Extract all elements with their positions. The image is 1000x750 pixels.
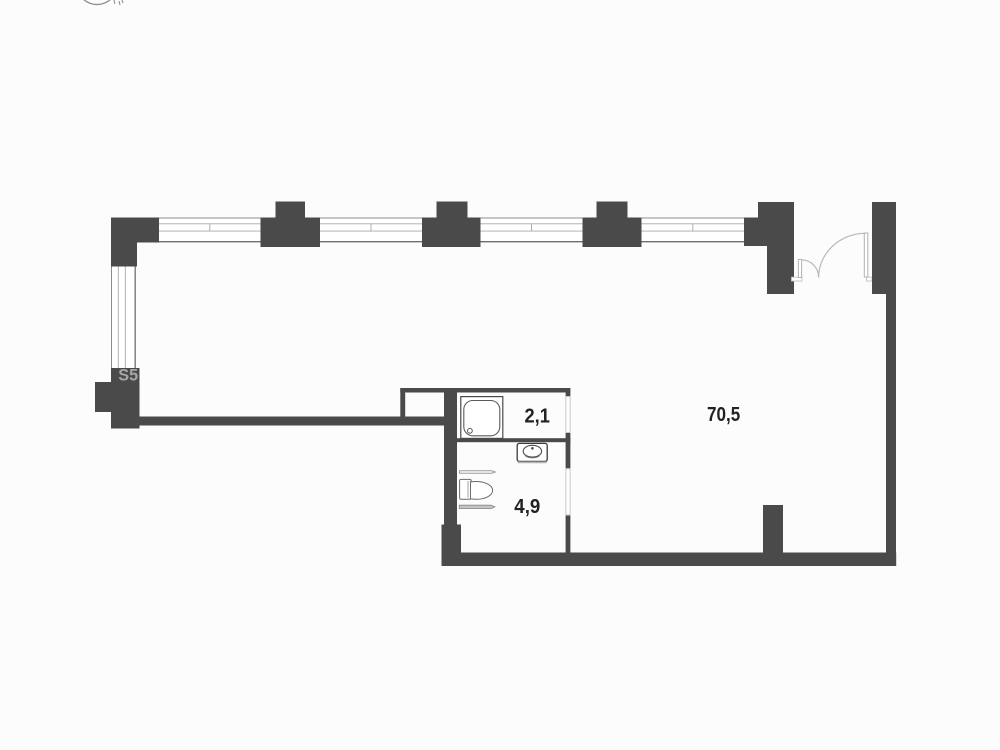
svg-text:4,9: 4,9 [514, 496, 540, 518]
svg-text:2,1: 2,1 [525, 405, 550, 427]
svg-text:70,5: 70,5 [707, 404, 740, 426]
svg-text:S5: S5 [118, 367, 138, 385]
